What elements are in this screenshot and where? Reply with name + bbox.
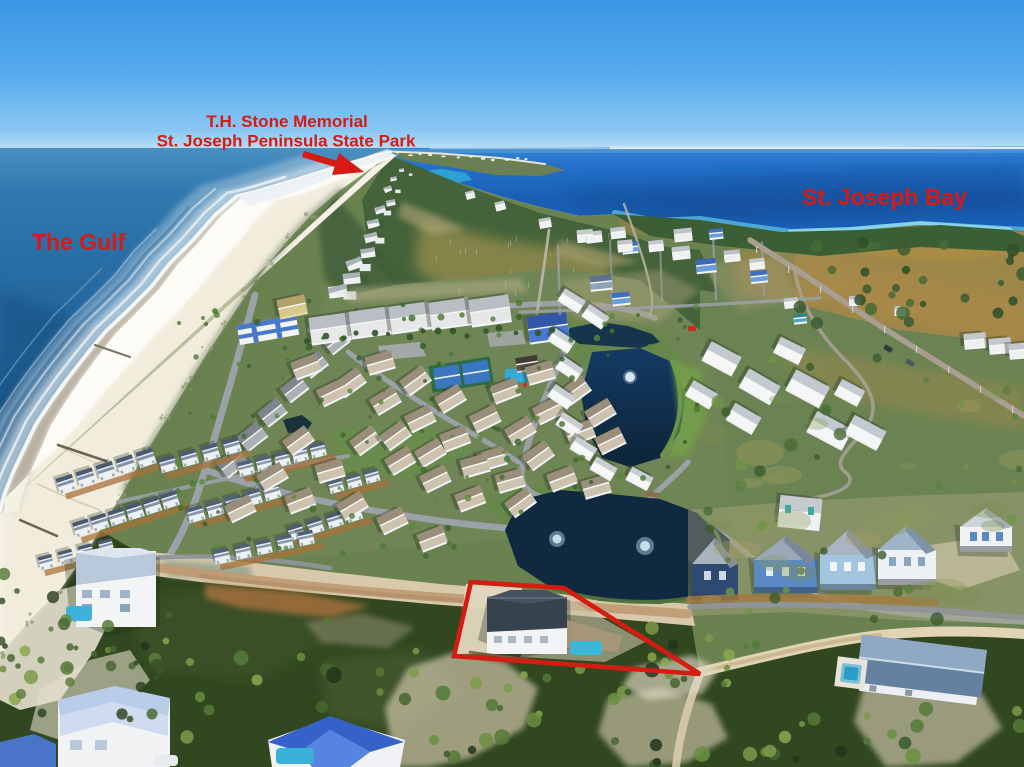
svg-text:St. Joseph Bay: St. Joseph Bay <box>802 184 967 210</box>
svg-text:The Gulf: The Gulf <box>32 229 126 255</box>
svg-text:T.H. Stone Memorial: T.H. Stone Memorial <box>206 112 368 131</box>
svg-text:St. Joseph Peninsula State Par: St. Joseph Peninsula State Park <box>157 132 416 151</box>
